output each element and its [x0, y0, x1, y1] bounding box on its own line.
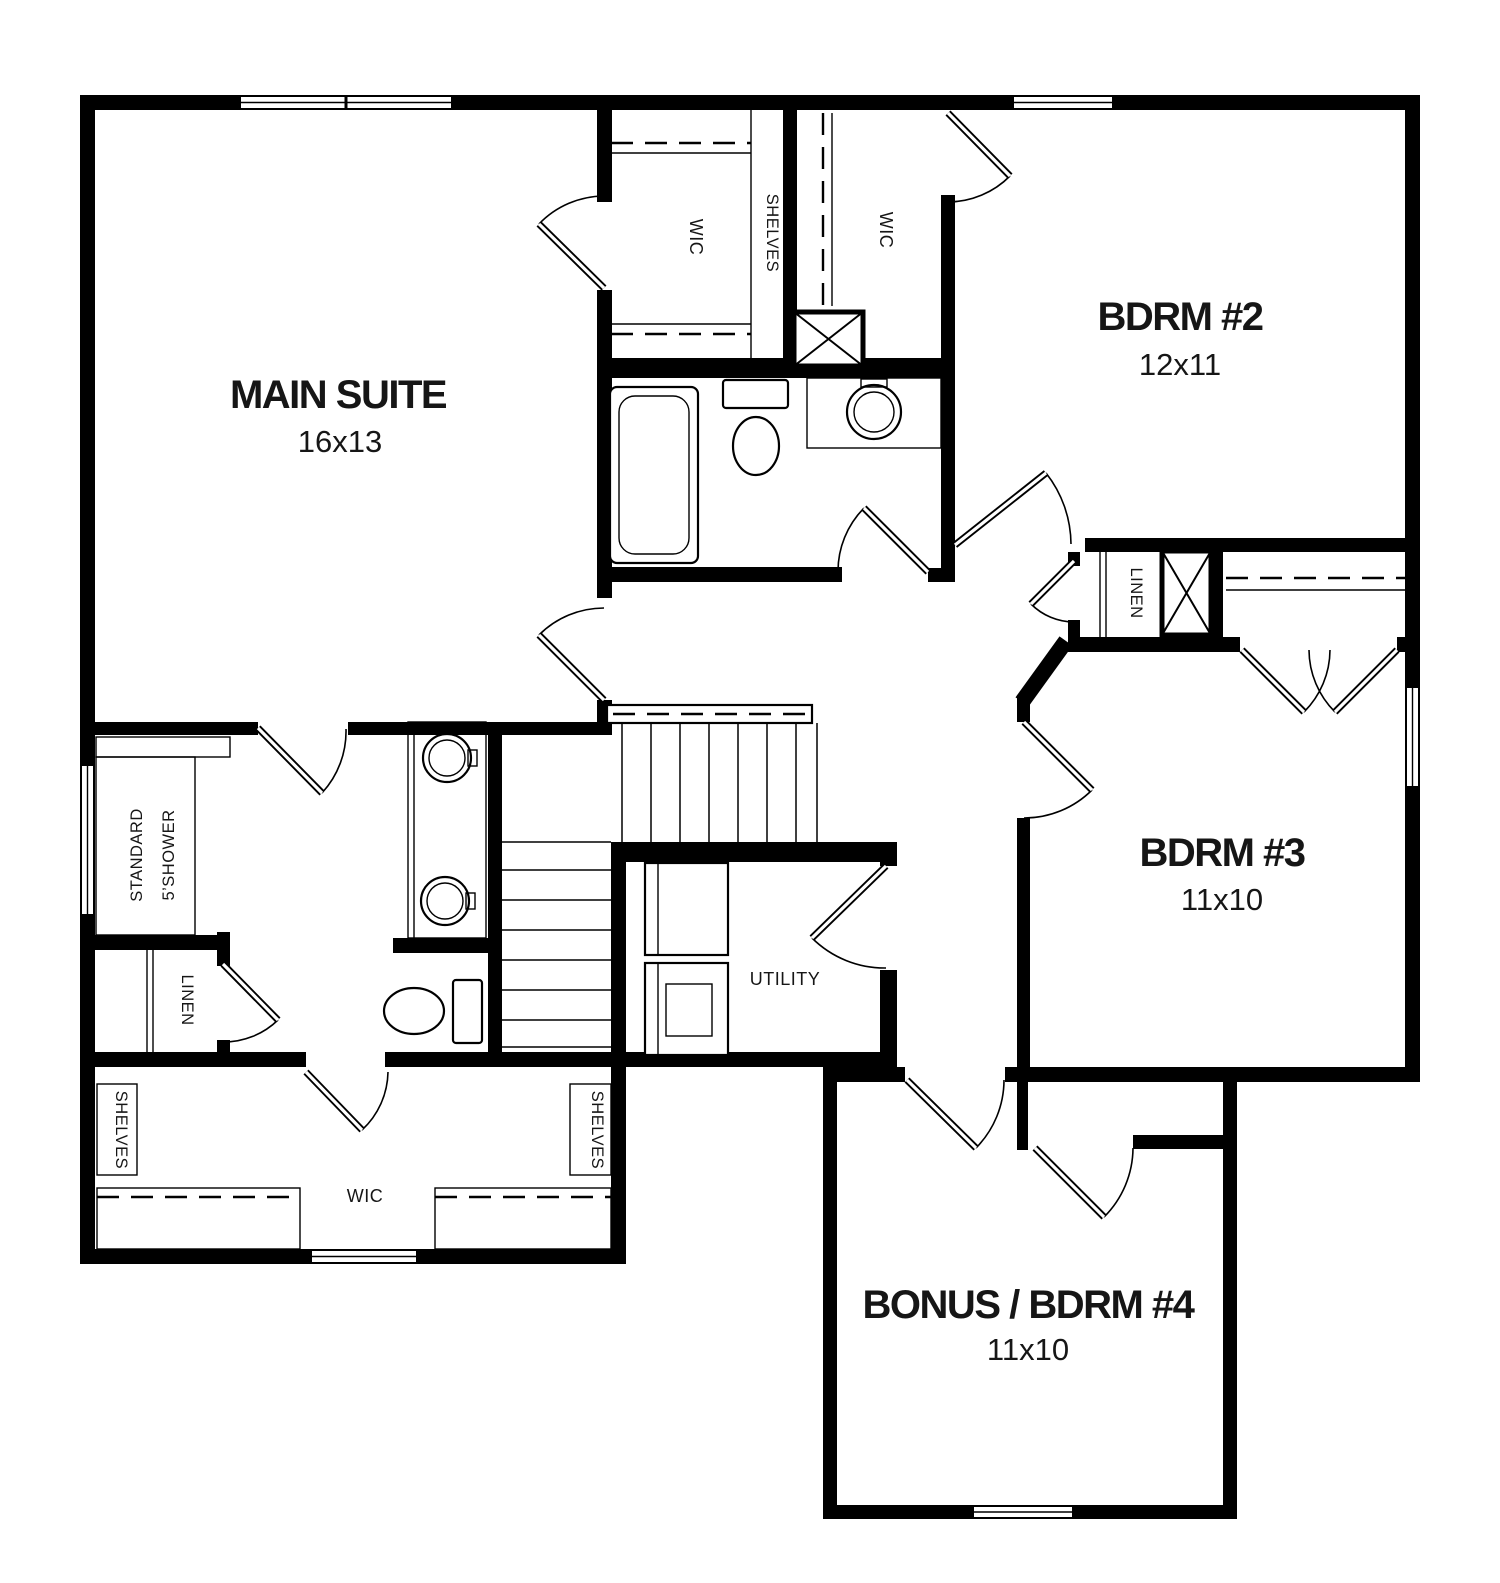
double-vanity [408, 722, 486, 938]
door-hall-bath [838, 508, 928, 572]
bonus-label: BONUS / BDRM #4 [863, 1283, 1196, 1327]
shower-label-2: 5’SHOWER [160, 809, 178, 900]
doors [223, 113, 1397, 1217]
wic-lower-label: WIC [347, 1186, 384, 1206]
door-linen-hall [1031, 561, 1074, 622]
chase-upper [794, 312, 863, 366]
window-main-suite [240, 96, 452, 109]
wic-bdrm2-label: WIC [876, 212, 896, 249]
door-wic-lower [306, 1072, 388, 1130]
floor-plan-page: MAIN SUITE 16x13 BDRM #2 12x11 BDRM #3 1… [0, 0, 1500, 1583]
main-suite-label: MAIN SUITE [230, 373, 447, 417]
door-wic-bdrm2 [948, 113, 1010, 202]
door-main-suite [539, 608, 604, 700]
door-master-bath [258, 728, 346, 793]
door-bonus-1 [907, 1080, 1004, 1148]
shelves-upper-label: SHELVES [763, 194, 781, 272]
bdrm3-label: BDRM #3 [1139, 831, 1304, 875]
bdrm2-label: BDRM #2 [1097, 295, 1262, 339]
door-wic-upper [539, 196, 604, 288]
window-wic [311, 1250, 417, 1263]
door-bdrm2 [955, 473, 1071, 545]
floor-plan-drawing: MAIN SUITE 16x13 BDRM #2 12x11 BDRM #3 1… [0, 0, 1500, 1583]
bdrm3-dims: 11x10 [1181, 882, 1263, 917]
vanity-hall-bath [807, 378, 941, 448]
utility-label: UTILITY [750, 969, 821, 989]
bathtub [610, 387, 698, 563]
main-suite-dims: 16x13 [298, 424, 382, 459]
wic-upper-label: WIC [686, 219, 706, 256]
washer [645, 863, 728, 955]
door-linen-bath [223, 964, 278, 1042]
toilet-hall-bath [723, 380, 788, 475]
toilet-master-bath [384, 980, 482, 1043]
linen-bath-label: LINEN [178, 974, 196, 1025]
door-bonus-2 [1035, 1148, 1133, 1217]
door-utility [812, 866, 886, 968]
door-bdrm3 [1024, 722, 1092, 818]
angled-wall [1022, 641, 1066, 702]
window-bdrm2 [1013, 96, 1113, 109]
window-shower [81, 765, 94, 915]
linen-hall-label: LINEN [1127, 567, 1145, 618]
shelves-left-label: SHELVES [112, 1091, 130, 1169]
shower-label-1: STANDARD [128, 808, 146, 902]
door-closet-bdrm3-right [1309, 650, 1397, 712]
bonus-dims: 11x10 [987, 1332, 1069, 1367]
stair-treads-upper [622, 723, 817, 842]
chase-hall [1162, 551, 1211, 635]
dryer [645, 963, 728, 1055]
window-bonus [973, 1506, 1073, 1518]
bdrm2-dims: 12x11 [1139, 347, 1221, 382]
window-bdrm3 [1406, 687, 1419, 787]
stair-treads-lower [502, 842, 611, 1047]
shelves-right-label: SHELVES [588, 1091, 606, 1169]
door-closet-bdrm3-left [1242, 650, 1330, 712]
